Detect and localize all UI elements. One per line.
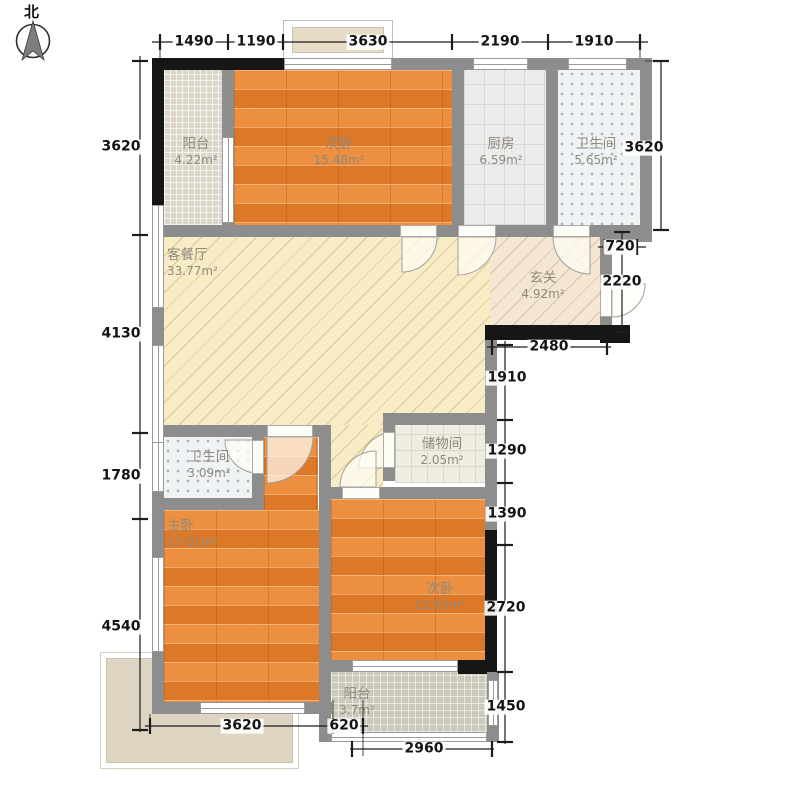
dim-right-inner-2: 1910 — [486, 371, 529, 386]
dim-top-2: 1190 — [235, 35, 278, 50]
dim-left-4: 4540 — [100, 620, 143, 635]
dim-top-5: 1910 — [573, 35, 616, 50]
dim-left-2: 4130 — [100, 327, 143, 342]
dim-right-inner-4: 1390 — [486, 507, 529, 522]
dim-top-4: 2190 — [479, 35, 522, 50]
dim-right-outer-1: 3620 — [623, 141, 666, 156]
compass: 北 — [0, 0, 64, 64]
dim-top-1: 1490 — [173, 35, 216, 50]
dim-bottom-3: 2960 — [403, 742, 446, 757]
dim-bottom-1: 3620 — [221, 719, 264, 734]
north-arrow-icon — [14, 18, 54, 62]
dim-right-outer-2: 720 — [603, 240, 636, 255]
dim-left-3: 1780 — [100, 469, 143, 484]
dim-right-inner-6: 1450 — [485, 700, 528, 715]
north-label: 北 — [24, 1, 39, 22]
dim-bottom-2: 620 — [327, 719, 360, 734]
dim-right-outer-3: 2220 — [601, 275, 644, 290]
dim-right-inner-5: 2720 — [485, 601, 528, 616]
dim-left-1: 3620 — [100, 140, 143, 155]
dim-right-inner-3: 1290 — [486, 444, 529, 459]
floor-plan: 北 — [0, 0, 800, 800]
dim-right-inner-1: 2480 — [528, 340, 571, 355]
dimension-lines — [0, 0, 800, 800]
dim-top-3: 3630 — [347, 35, 390, 50]
